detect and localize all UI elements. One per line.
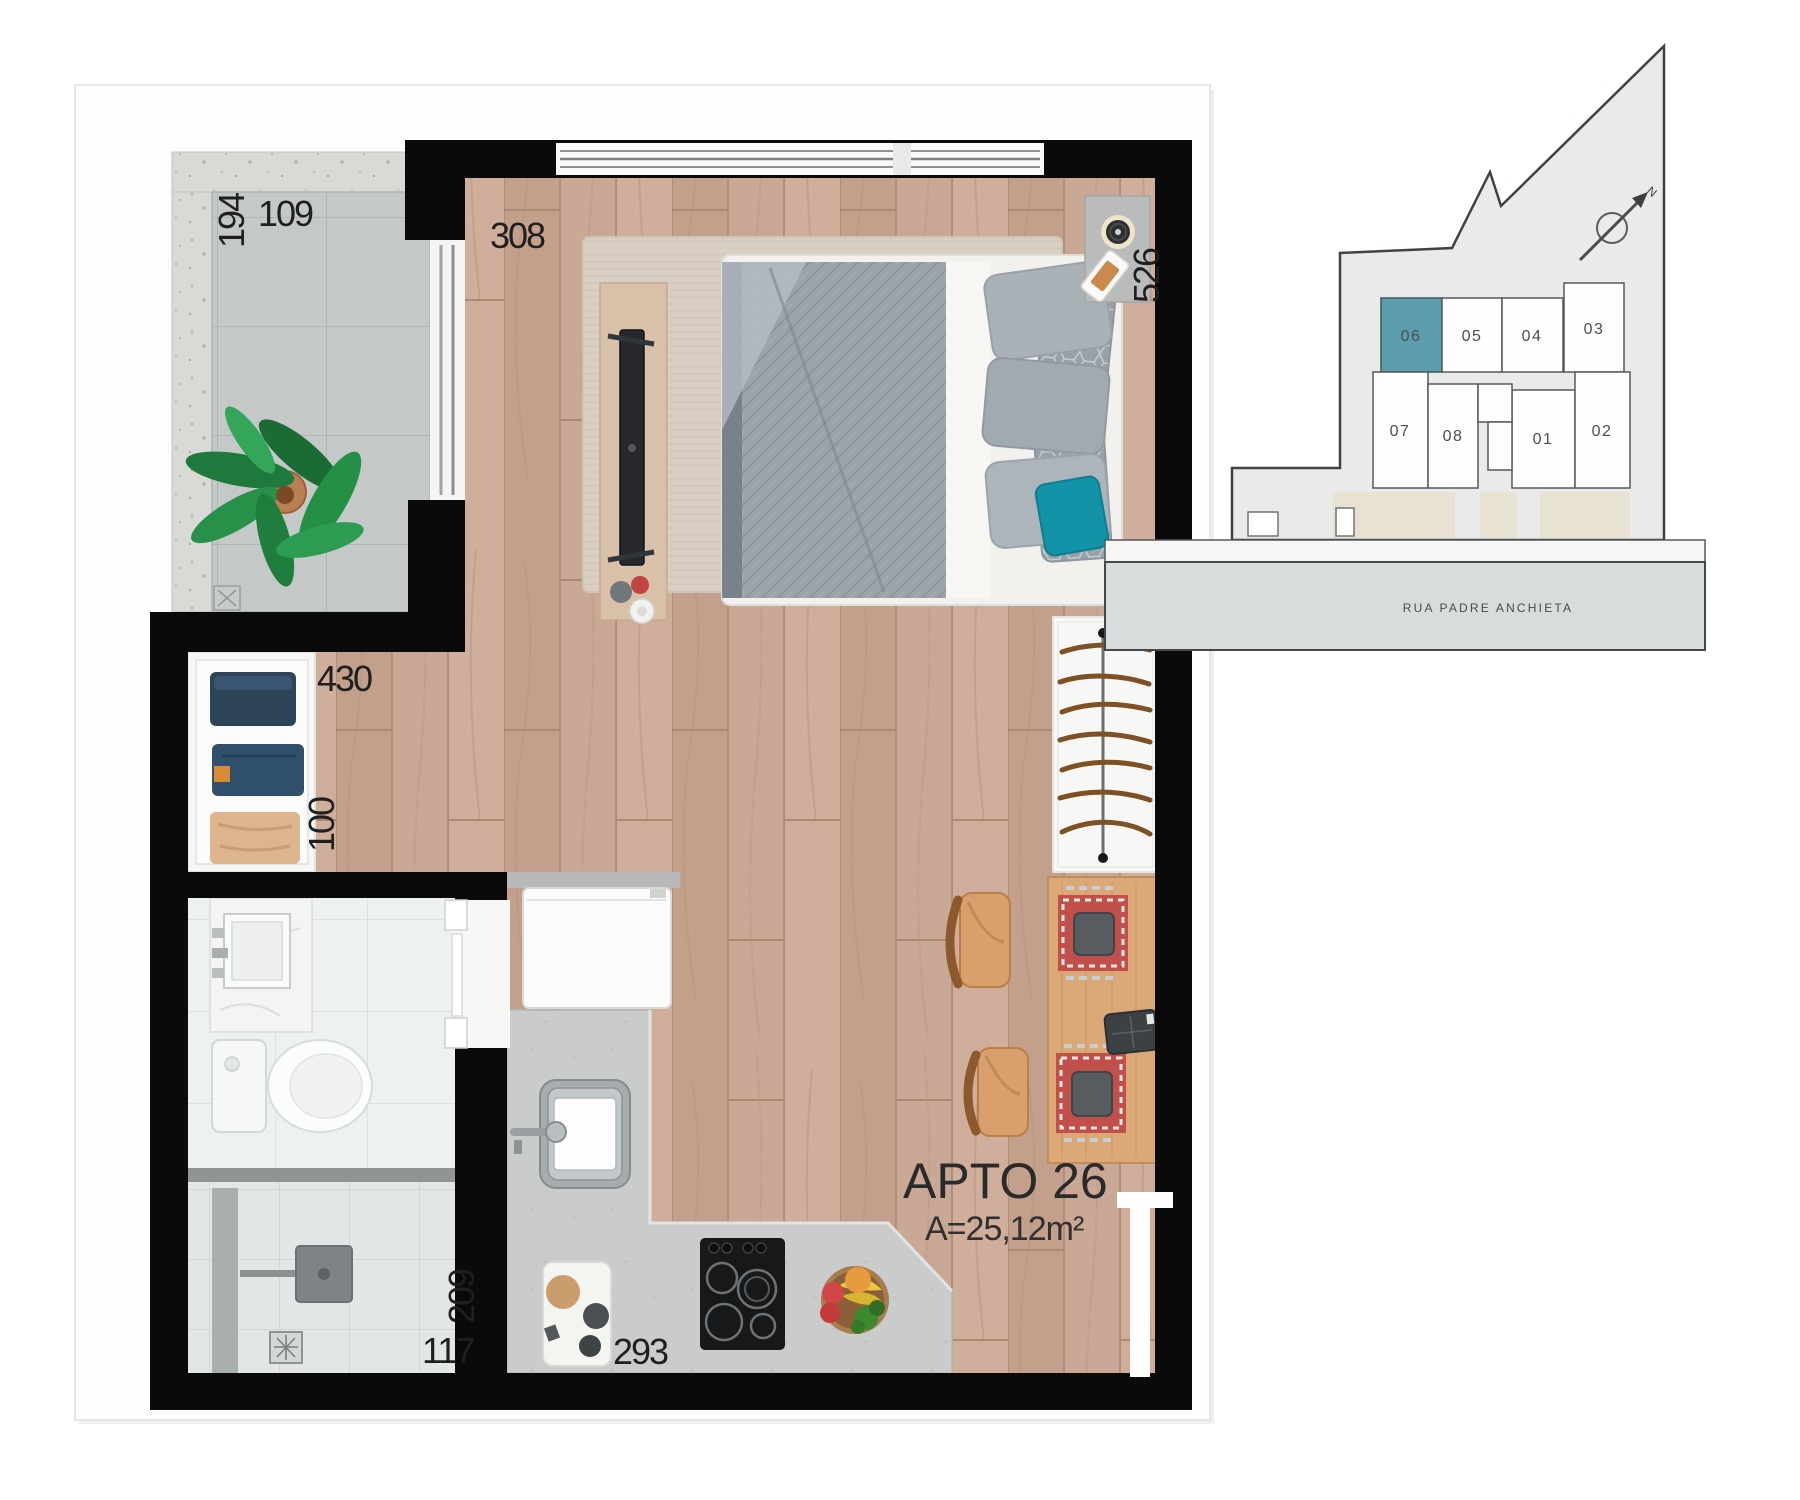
- unit-cell-label: 05: [1462, 328, 1483, 345]
- dim-shower-length: 209: [441, 1269, 482, 1324]
- chair: [968, 1048, 1028, 1136]
- dim-closet-wall: 430: [317, 658, 372, 699]
- tv-panel: [600, 283, 667, 620]
- placemat: [1056, 1046, 1126, 1140]
- open-closet: [1053, 617, 1158, 872]
- keymap-unit-07[interactable]: 07: [1373, 372, 1428, 488]
- plate: [1072, 1072, 1112, 1116]
- seat-cushion: [1104, 1009, 1160, 1054]
- wall-bottom: [150, 1373, 1192, 1410]
- floor-plan: 194 109 308 526 430 100 209 117 293 APTO…: [75, 85, 1214, 1424]
- wall-right: [1155, 140, 1192, 1373]
- counter-back: [507, 872, 680, 888]
- cooktop: [700, 1238, 785, 1350]
- wall: [408, 500, 465, 652]
- shower-glass: [212, 1188, 238, 1373]
- shower-drain-icon: [270, 1332, 302, 1363]
- balcony-wall-left: [172, 192, 212, 612]
- pillow: [981, 357, 1110, 455]
- apartment-area: A=25,12m²: [925, 1210, 1084, 1248]
- dining-table: [1048, 877, 1160, 1163]
- dim-shower-width: 117: [422, 1330, 474, 1371]
- wall: [405, 140, 465, 240]
- chair: [950, 893, 1010, 987]
- unit-cell-label: 03: [1584, 321, 1605, 338]
- unit-cell-label: 08: [1443, 428, 1464, 445]
- placemat: [1058, 888, 1128, 978]
- plate: [1074, 913, 1114, 955]
- dim-balcony-width: 109: [258, 193, 313, 234]
- keymap-unit-04[interactable]: 04: [1502, 298, 1563, 372]
- balcony-drain-icon: [214, 586, 240, 610]
- unit-cell-label: 07: [1390, 423, 1411, 440]
- dim-bed-wall: 526: [1126, 248, 1167, 303]
- keymap-unit-05[interactable]: 05: [1442, 298, 1502, 372]
- balcony-sliding-door: [430, 240, 465, 500]
- cutting-board: [543, 1262, 611, 1366]
- shower-partition: [188, 1168, 455, 1182]
- street-label: RUA PADRE ANCHIETA: [1403, 601, 1574, 615]
- unit-cell-label: 01: [1533, 431, 1554, 448]
- keymap-unit-02[interactable]: 02: [1575, 372, 1630, 488]
- unit-cell-label: 02: [1592, 423, 1613, 440]
- wardrobe: [188, 652, 315, 872]
- wall: [150, 872, 507, 898]
- fridge: [523, 888, 671, 1008]
- toilet: [212, 1040, 372, 1132]
- accent-pillow: [1034, 475, 1110, 557]
- dim-balcony-length: 194: [211, 193, 252, 248]
- keymap-unit-08[interactable]: 08: [1428, 384, 1478, 488]
- vanity-sink: [210, 898, 312, 1032]
- wall-left: [150, 612, 188, 1373]
- keymap-unit-03[interactable]: 03: [1564, 283, 1624, 372]
- speaker-icon: [1101, 215, 1135, 249]
- bathroom: [188, 898, 455, 1373]
- screenshot-canvas: 194 109 308 526 430 100 209 117 293 APTO…: [0, 0, 1800, 1500]
- bathroom-door: [445, 900, 510, 1048]
- unit-cell-label: 04: [1522, 328, 1543, 345]
- dim-closet-depth: 100: [301, 797, 342, 852]
- curb: [1105, 540, 1705, 562]
- unit-cell-label: 06: [1401, 328, 1422, 345]
- floorplan-canvas: 194 109 308 526 430 100 209 117 293 APTO…: [0, 0, 1800, 1500]
- keymap-unit-01[interactable]: 01: [1512, 390, 1575, 488]
- balcony-wall-top: [172, 152, 430, 192]
- apartment-title: APTO 26: [903, 1153, 1108, 1209]
- dim-kitchen-width: 293: [613, 1331, 668, 1372]
- dim-living-width: 308: [490, 215, 545, 256]
- bed: [722, 255, 1122, 605]
- window-pier: [893, 143, 911, 175]
- folded-clothes: [210, 672, 304, 864]
- street: RUA PADRE ANCHIETA: [1105, 562, 1705, 650]
- keymap-unit-06[interactable]: 06: [1381, 298, 1442, 372]
